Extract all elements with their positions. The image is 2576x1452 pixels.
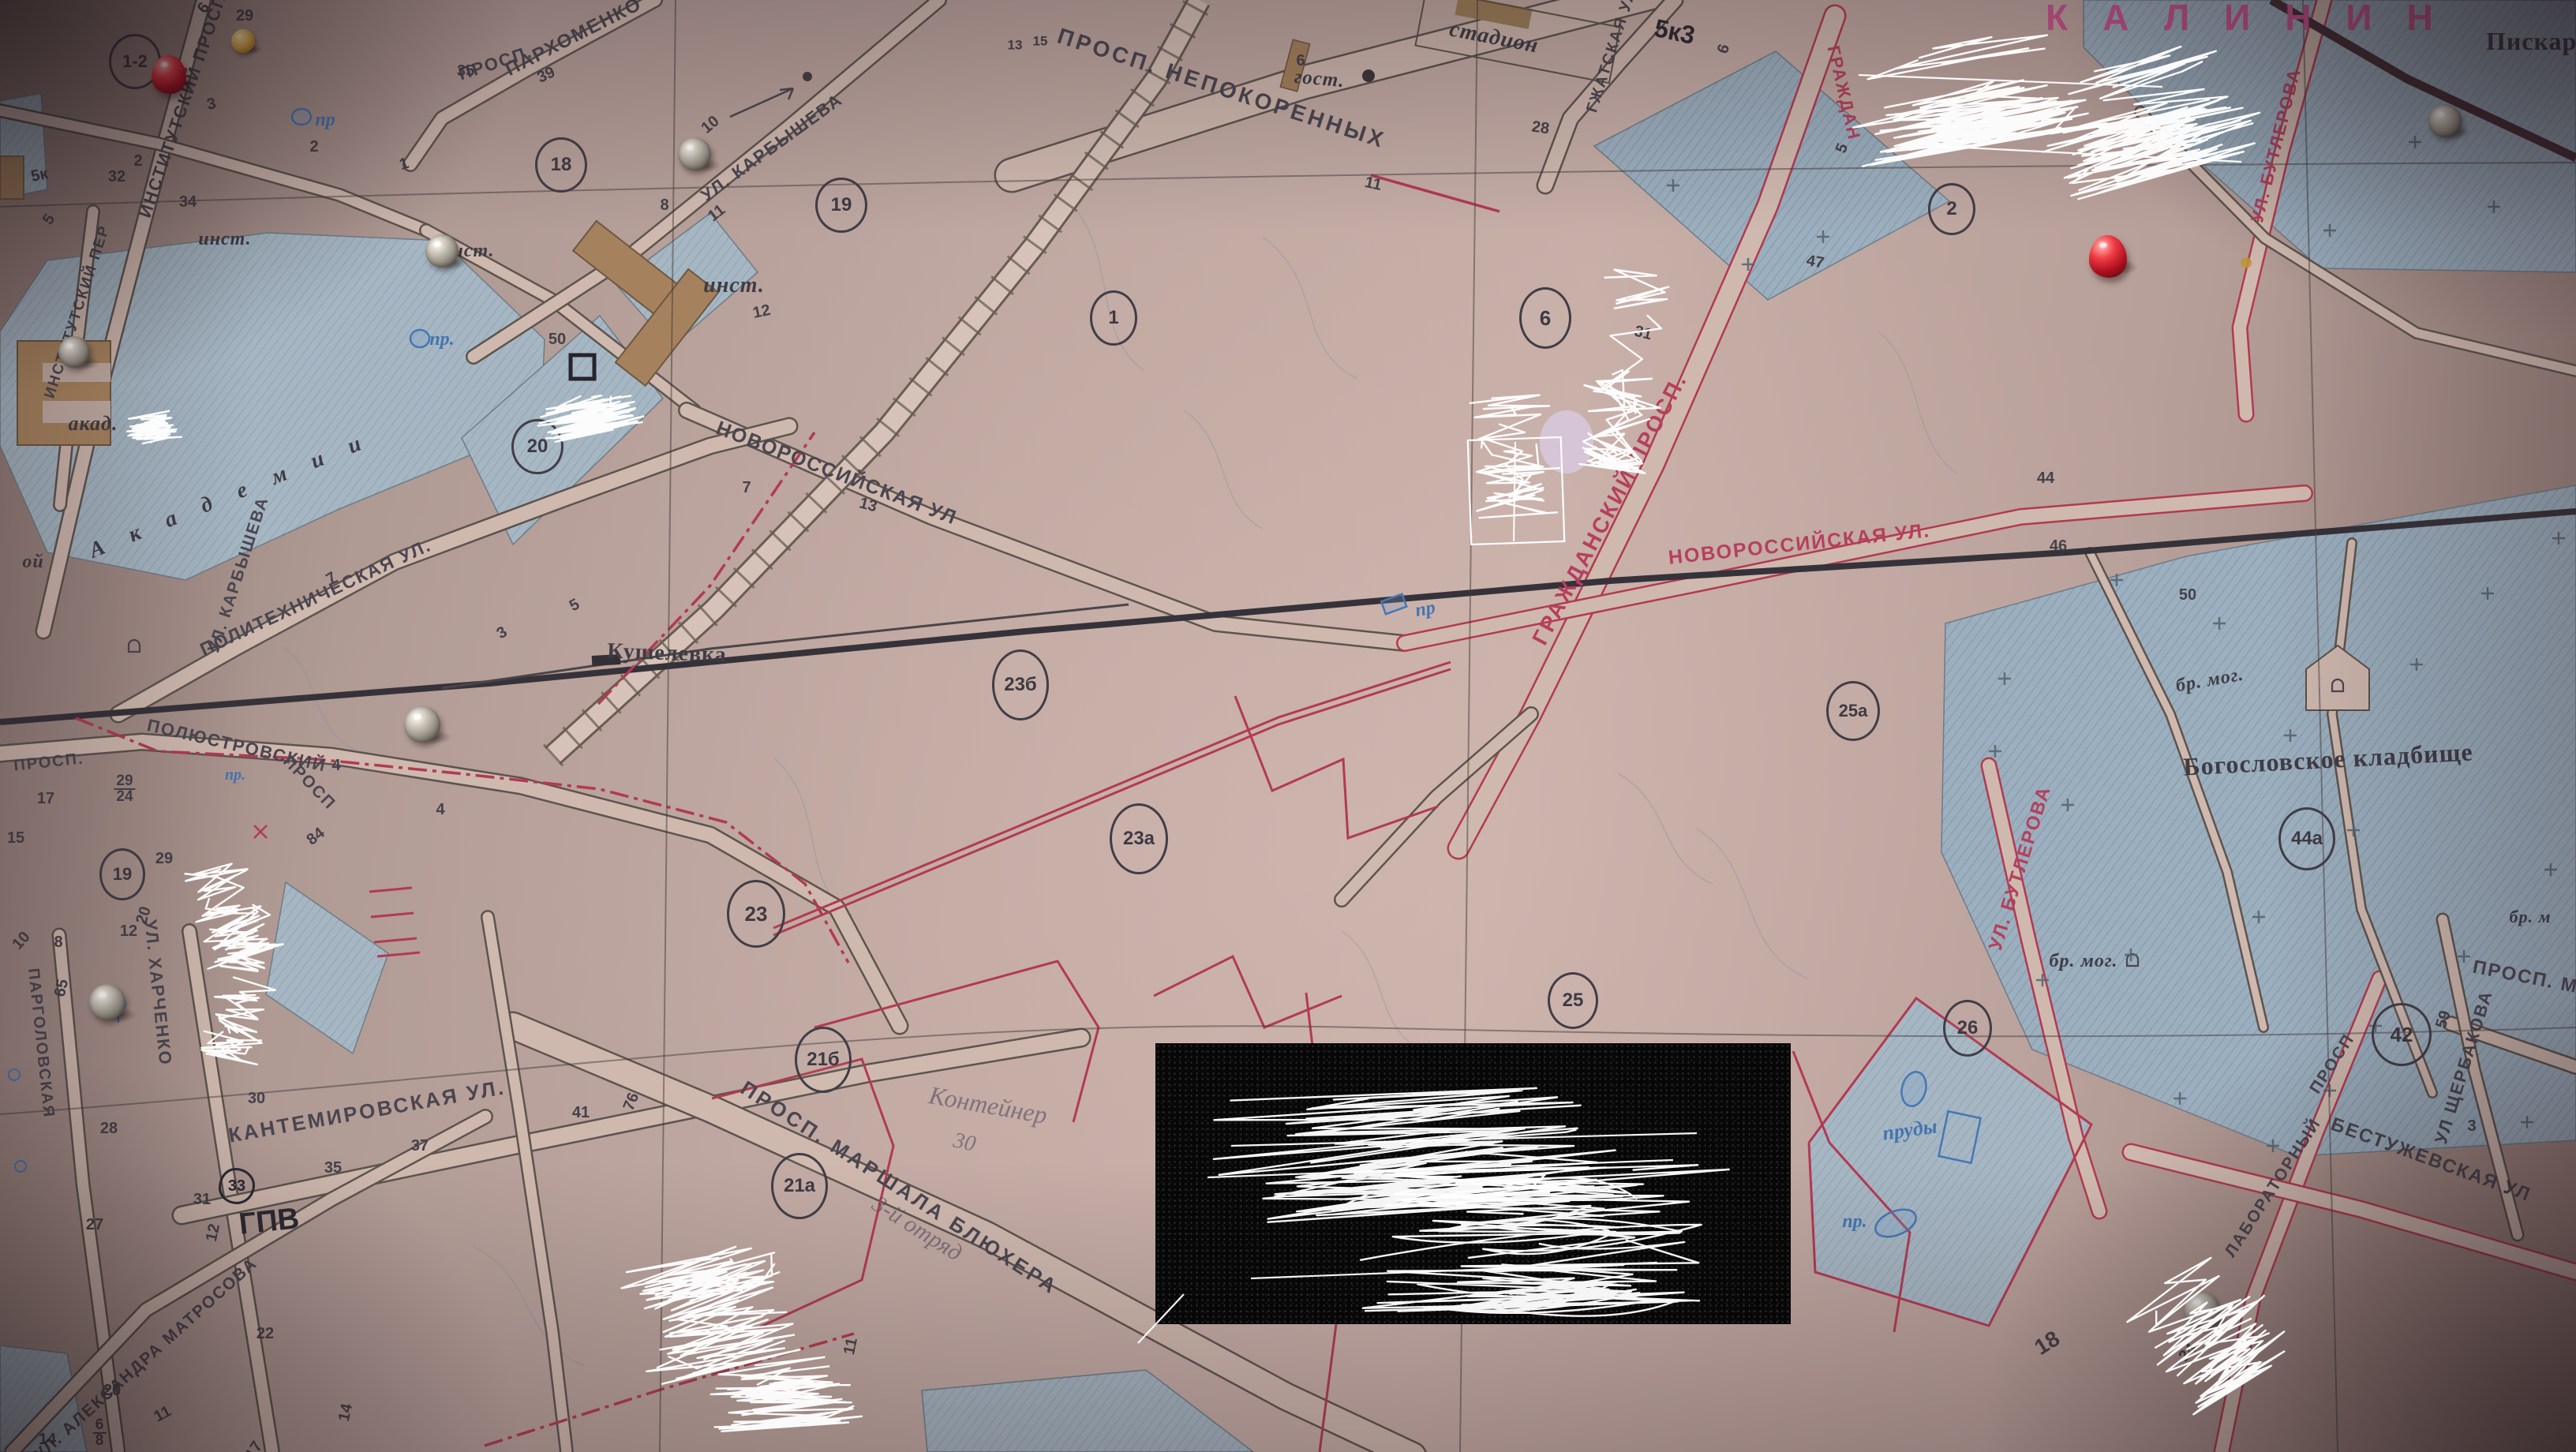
scribble-annotation bbox=[2121, 1242, 2297, 1418]
scribble-annotation bbox=[178, 851, 283, 968]
map-photo: КАЛИНИНПискарёвкаИНСТИТУТСКИЙ ПРОСП.ИНСТ… bbox=[0, 0, 2576, 1452]
scribble-annotation bbox=[200, 952, 281, 1065]
scribble-annotation bbox=[534, 384, 646, 444]
scribble-annotation bbox=[125, 410, 182, 445]
scribble-annotations-layer bbox=[0, 0, 2576, 1452]
scribble-box-outline bbox=[1514, 442, 1515, 541]
scribble-annotation bbox=[1574, 268, 1679, 473]
scribble-annotation bbox=[1210, 1074, 1619, 1226]
scribble-annotation bbox=[1138, 1294, 1184, 1343]
scribble-annotation bbox=[1470, 394, 1563, 518]
